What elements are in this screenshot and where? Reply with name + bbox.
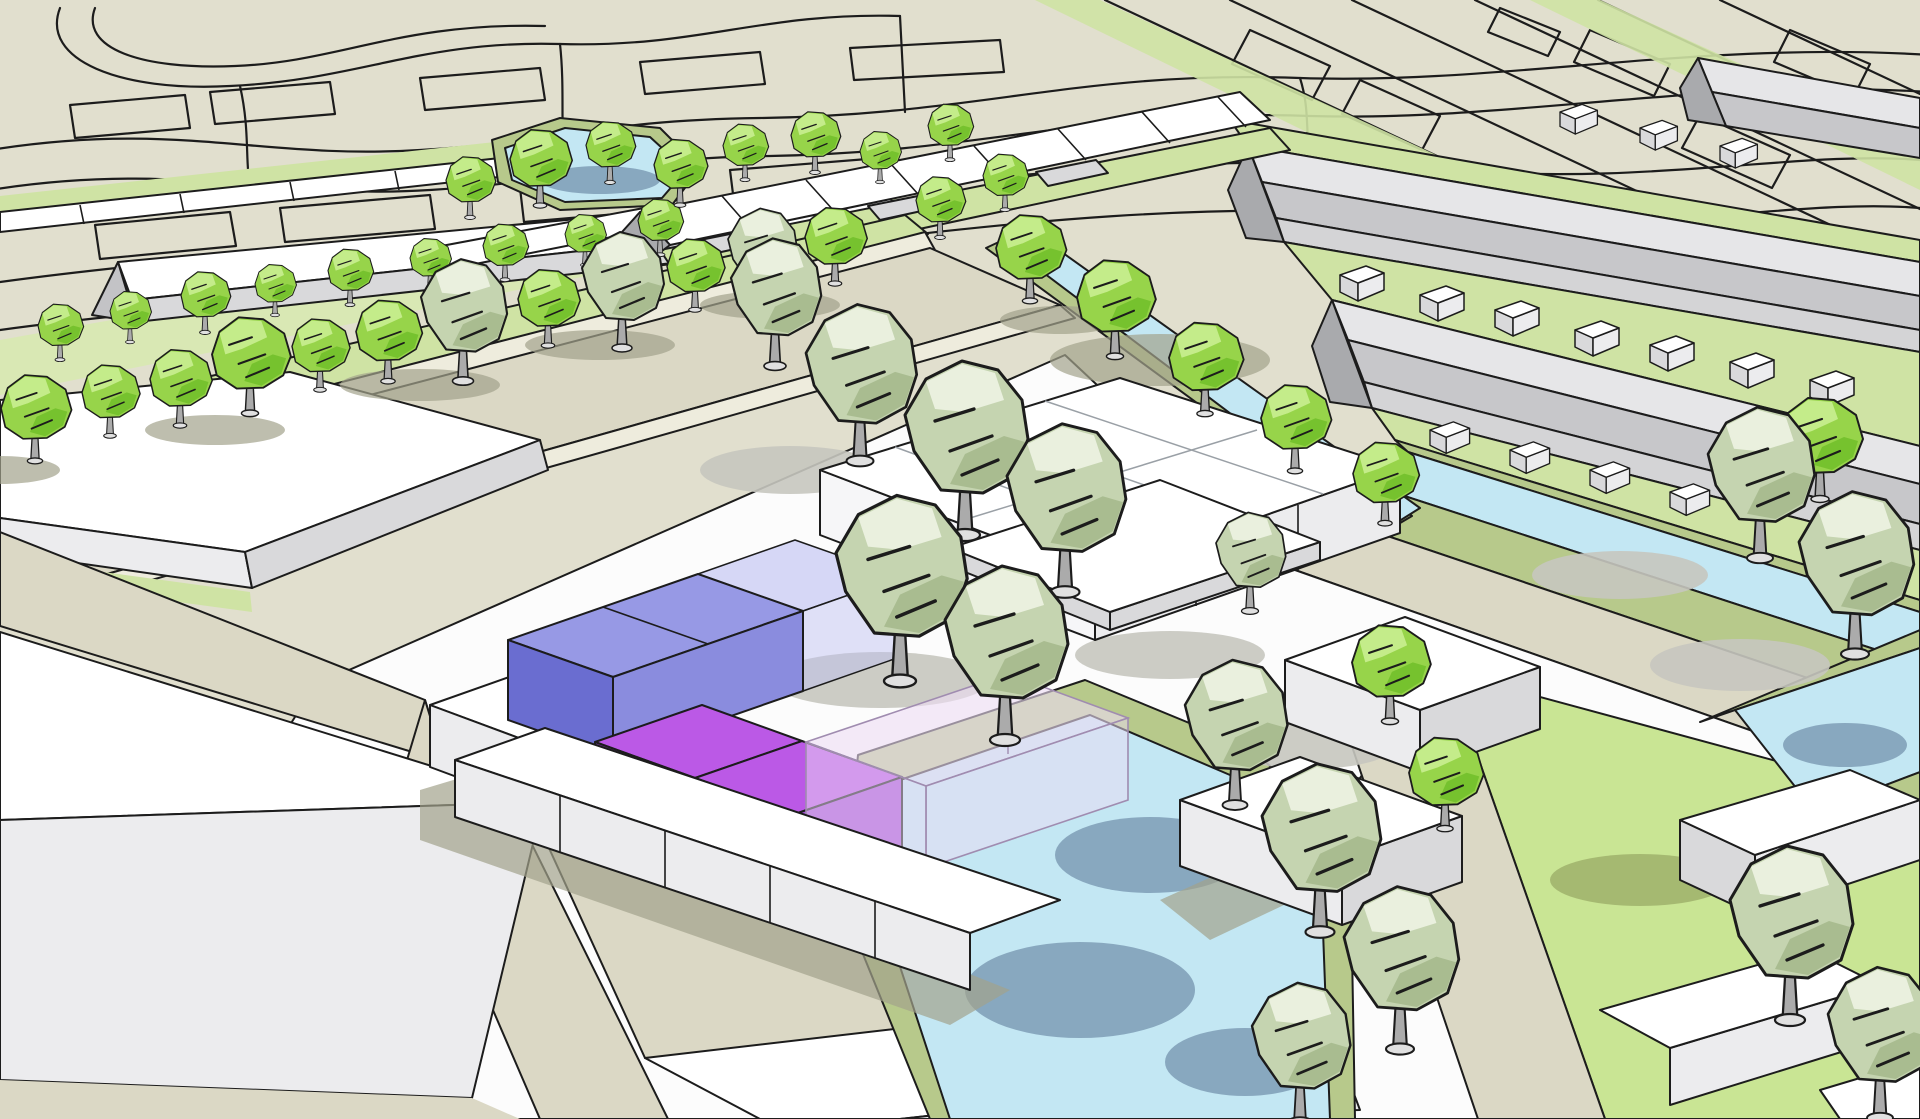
tree-shadow <box>1532 551 1708 599</box>
tree-shadow <box>340 369 500 401</box>
water-tree-shadow <box>1783 723 1907 767</box>
tree-shadow <box>145 415 285 445</box>
massing-render-viewport <box>0 0 1920 1119</box>
tree-shadow <box>1650 639 1830 691</box>
massing-render-canvas <box>0 0 1920 1119</box>
